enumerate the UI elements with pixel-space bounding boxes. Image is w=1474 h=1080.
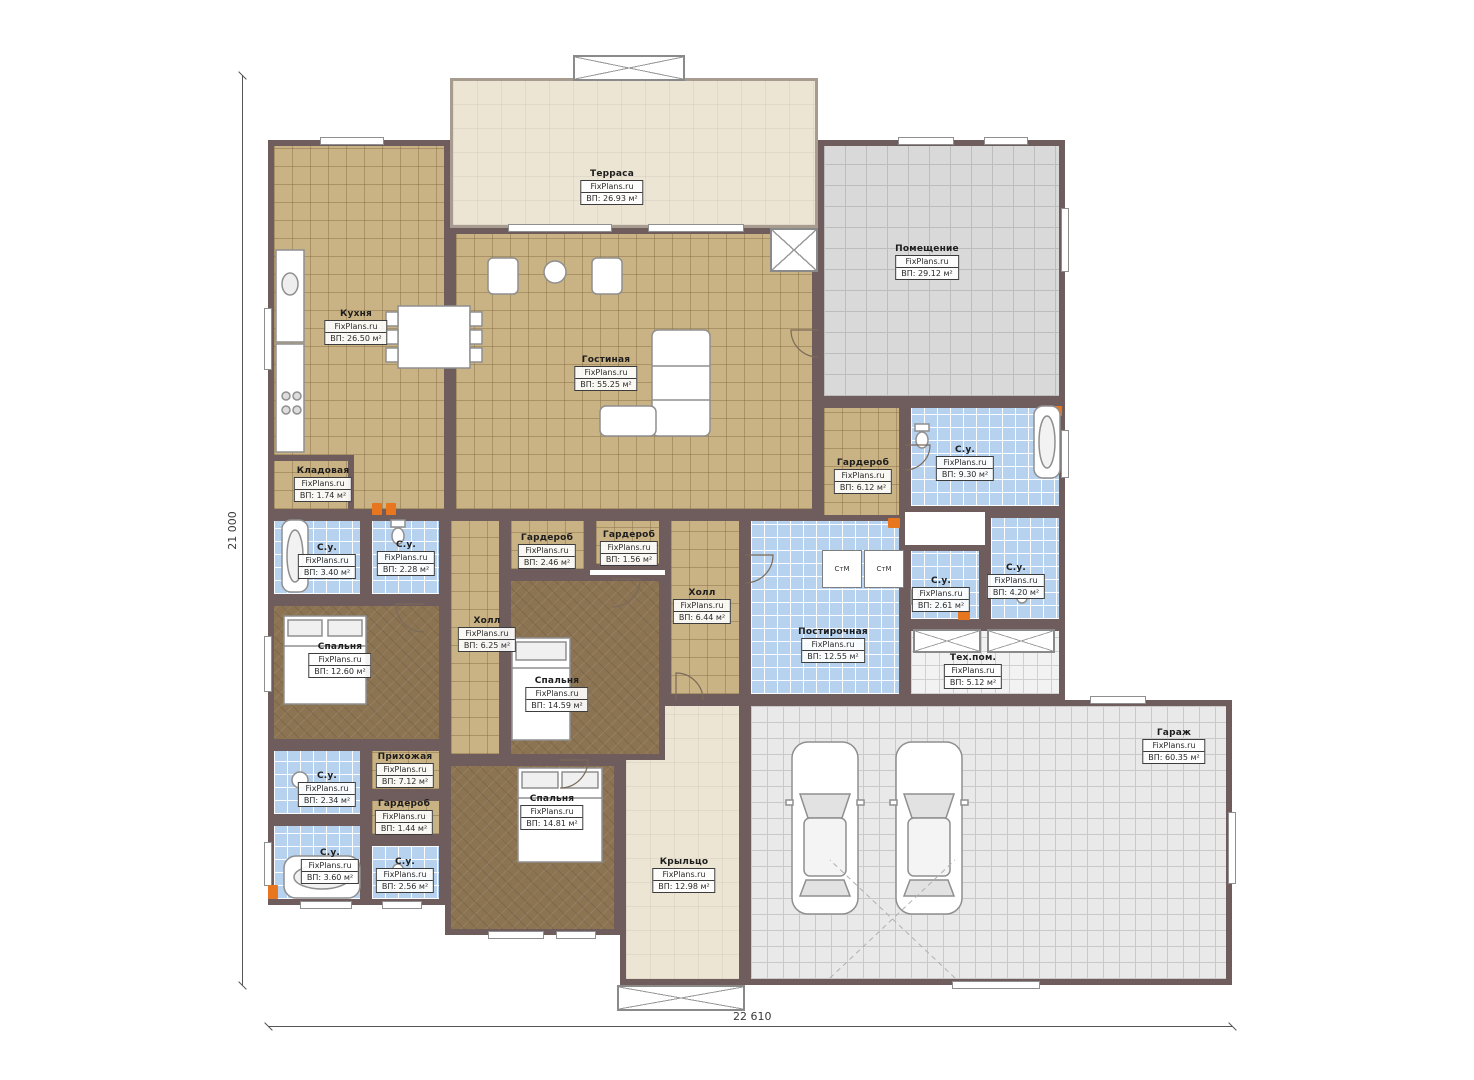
label-wardrobe-master: Гардероб FixPlans.ruВП: 6.12 м² (834, 458, 892, 494)
room-area: ВП: 2.56 м² (377, 881, 433, 892)
room-area: ВП: 5.12 м² (945, 677, 1001, 688)
label-wardrobe-246: Гардероб FixPlans.ruВП: 2.46 м² (518, 533, 576, 569)
watermark: FixPlans.ru (1143, 740, 1204, 752)
window (556, 931, 596, 939)
watermark: FixPlans.ru (913, 588, 969, 600)
watermark: FixPlans.ru (325, 321, 386, 333)
watermark: FixPlans.ru (519, 545, 575, 557)
watermark: FixPlans.ru (802, 639, 863, 651)
label-wardrobe-156: Гардероб FixPlans.ruВП: 1.56 м² (600, 530, 658, 566)
label-wardrobe-144: Гардероб FixPlans.ruВП: 1.44 м² (375, 799, 433, 835)
room-area: ВП: 9.30 м² (937, 469, 993, 480)
window (952, 981, 1040, 989)
room-area: ВП: 2.61 м² (913, 600, 969, 611)
watermark: FixPlans.ru (299, 555, 355, 567)
room-area: ВП: 12.98 м² (653, 881, 714, 892)
label-tech-room: Тех.пом. FixPlans.ruВП: 5.12 м² (944, 653, 1002, 689)
room-area: ВП: 1.44 м² (376, 823, 432, 834)
radiator-icon (386, 503, 396, 515)
label-garage: Гараж FixPlans.ruВП: 60.35 м² (1142, 728, 1205, 764)
watermark: FixPlans.ru (653, 869, 714, 881)
window (264, 308, 272, 370)
window (984, 137, 1028, 145)
radiator-icon (372, 503, 382, 515)
room-area: ВП: 26.93 м² (581, 193, 642, 204)
label-bathroom-930: С.у. FixPlans.ruВП: 9.30 м² (936, 445, 994, 481)
dimension-line-vertical (242, 75, 243, 985)
room-area: ВП: 14.59 м² (526, 700, 587, 711)
window (488, 931, 544, 939)
room-area: ВП: 60.35 м² (1143, 752, 1204, 763)
window (648, 224, 744, 232)
room-bedroom-1481 (445, 760, 620, 935)
room-area: ВП: 12.55 м² (802, 651, 863, 662)
window (1228, 812, 1236, 884)
watermark: FixPlans.ru (295, 478, 351, 490)
room-area: ВП: 6.25 м² (459, 640, 515, 651)
room-area: ВП: 4.20 м² (988, 587, 1044, 598)
watermark: FixPlans.ru (526, 688, 587, 700)
washer-slot-label: СтМ (876, 565, 891, 573)
watermark: FixPlans.ru (309, 654, 370, 666)
label-hall-625: Холл FixPlans.ruВП: 6.25 м² (458, 616, 516, 652)
dimension-line-horizontal (268, 1026, 1232, 1027)
watermark: FixPlans.ru (378, 552, 434, 564)
radiator-icon (1050, 406, 1062, 416)
dimension-value-horizontal: 22 610 (733, 1010, 772, 1023)
room-area: ВП: 1.74 м² (295, 490, 351, 501)
room-area: ВП: 3.40 м² (299, 567, 355, 578)
window (264, 636, 272, 692)
label-hall-644: Холл FixPlans.ruВП: 6.44 м² (673, 588, 731, 624)
watermark: FixPlans.ru (376, 811, 432, 823)
watermark: FixPlans.ru (459, 628, 515, 640)
room-area: ВП: 2.28 м² (378, 564, 434, 575)
watermark: FixPlans.ru (299, 783, 355, 795)
washer-slot-label: СтМ (834, 565, 849, 573)
label-pantry: Кладовая FixPlans.ruВП: 1.74 м² (294, 466, 352, 502)
label-bathroom-261: С.у. FixPlans.ruВП: 2.61 м² (912, 576, 970, 612)
radiator-icon (268, 885, 278, 899)
label-bathroom-420: С.у. FixPlans.ruВП: 4.20 м² (987, 563, 1045, 599)
label-bedroom-1481: Спальня FixPlans.ruВП: 14.81 м² (520, 794, 583, 830)
watermark: FixPlans.ru (377, 764, 433, 776)
label-kitchen: Кухня FixPlans.ruВП: 26.50 м² (324, 309, 387, 345)
fireplace-icon (770, 228, 818, 272)
window (1061, 208, 1069, 272)
window-terrace-door (508, 224, 612, 232)
room-area: ВП: 26.50 м² (325, 333, 386, 344)
window (382, 901, 422, 909)
label-bedroom-1459: Спальня FixPlans.ruВП: 14.59 м² (525, 676, 588, 712)
porch-steps-hatch (617, 985, 745, 1011)
window (320, 137, 384, 145)
room-terrace (450, 78, 818, 228)
washer-slot-2: СтМ (864, 550, 904, 588)
label-bathroom-256: С.у. FixPlans.ruВП: 2.56 м² (376, 857, 434, 893)
watermark: FixPlans.ru (945, 665, 1001, 677)
watermark: FixPlans.ru (601, 542, 657, 554)
watermark: FixPlans.ru (377, 869, 433, 881)
dimension-value-vertical: 21 000 (226, 511, 239, 550)
label-terrace: Терраса FixPlans.ruВП: 26.93 м² (580, 169, 643, 205)
watermark: FixPlans.ru (937, 457, 993, 469)
label-bedroom-1260: Спальня FixPlans.ruВП: 12.60 м² (308, 642, 371, 678)
window (898, 137, 954, 145)
room-area: ВП: 6.44 м² (674, 612, 730, 623)
label-laundry: Постирочная FixPlans.ruВП: 12.55 м² (798, 627, 868, 663)
watermark: FixPlans.ru (581, 181, 642, 193)
boiler-hatch-2 (987, 629, 1055, 653)
window (1061, 430, 1069, 478)
room-area: ВП: 2.46 м² (519, 557, 575, 568)
watermark: FixPlans.ru (521, 806, 582, 818)
room-area: ВП: 6.12 м² (835, 482, 891, 493)
radiator-icon (888, 518, 900, 528)
room-area: ВП: 7.12 м² (377, 776, 433, 787)
window (300, 901, 352, 909)
window (1090, 696, 1146, 704)
watermark: FixPlans.ru (674, 600, 730, 612)
room-bedroom-1459 (505, 575, 665, 760)
room-area: ВП: 55.25 м² (575, 379, 636, 390)
room-area: ВП: 1.56 м² (601, 554, 657, 565)
washer-slot-1: СтМ (822, 550, 862, 588)
watermark: FixPlans.ru (575, 367, 636, 379)
window (264, 842, 272, 886)
label-bathroom-228: С.у. FixPlans.ruВП: 2.28 м² (377, 540, 435, 576)
label-bathroom-360: С.у. FixPlans.ruВП: 3.60 м² (301, 848, 359, 884)
label-entry-hall: Прихожая FixPlans.ruВП: 7.12 м² (376, 752, 434, 788)
label-bathroom-234: С.у. FixPlans.ruВП: 2.34 м² (298, 771, 356, 807)
watermark: FixPlans.ru (835, 470, 891, 482)
watermark: FixPlans.ru (988, 575, 1044, 587)
boiler-hatch (913, 629, 981, 653)
label-bathroom-340: С.у. FixPlans.ruВП: 3.40 м² (298, 543, 356, 579)
room-area: ВП: 2.34 м² (299, 795, 355, 806)
room-area: ВП: 29.12 м² (896, 268, 957, 279)
watermark: FixPlans.ru (302, 860, 358, 872)
terrace-vent-hatch (573, 55, 685, 81)
label-utility-space: Помещение FixPlans.ruВП: 29.12 м² (895, 244, 959, 280)
room-area: ВП: 3.60 м² (302, 872, 358, 883)
room-area: ВП: 14.81 м² (521, 818, 582, 829)
label-porch: Крыльцо FixPlans.ruВП: 12.98 м² (652, 857, 715, 893)
floor-plan: СтМ СтМ (0, 0, 1474, 1080)
room-area: ВП: 12.60 м² (309, 666, 370, 677)
room-laundry (745, 515, 905, 700)
label-living-room: Гостиная FixPlans.ruВП: 55.25 м² (574, 355, 637, 391)
watermark: FixPlans.ru (896, 256, 957, 268)
